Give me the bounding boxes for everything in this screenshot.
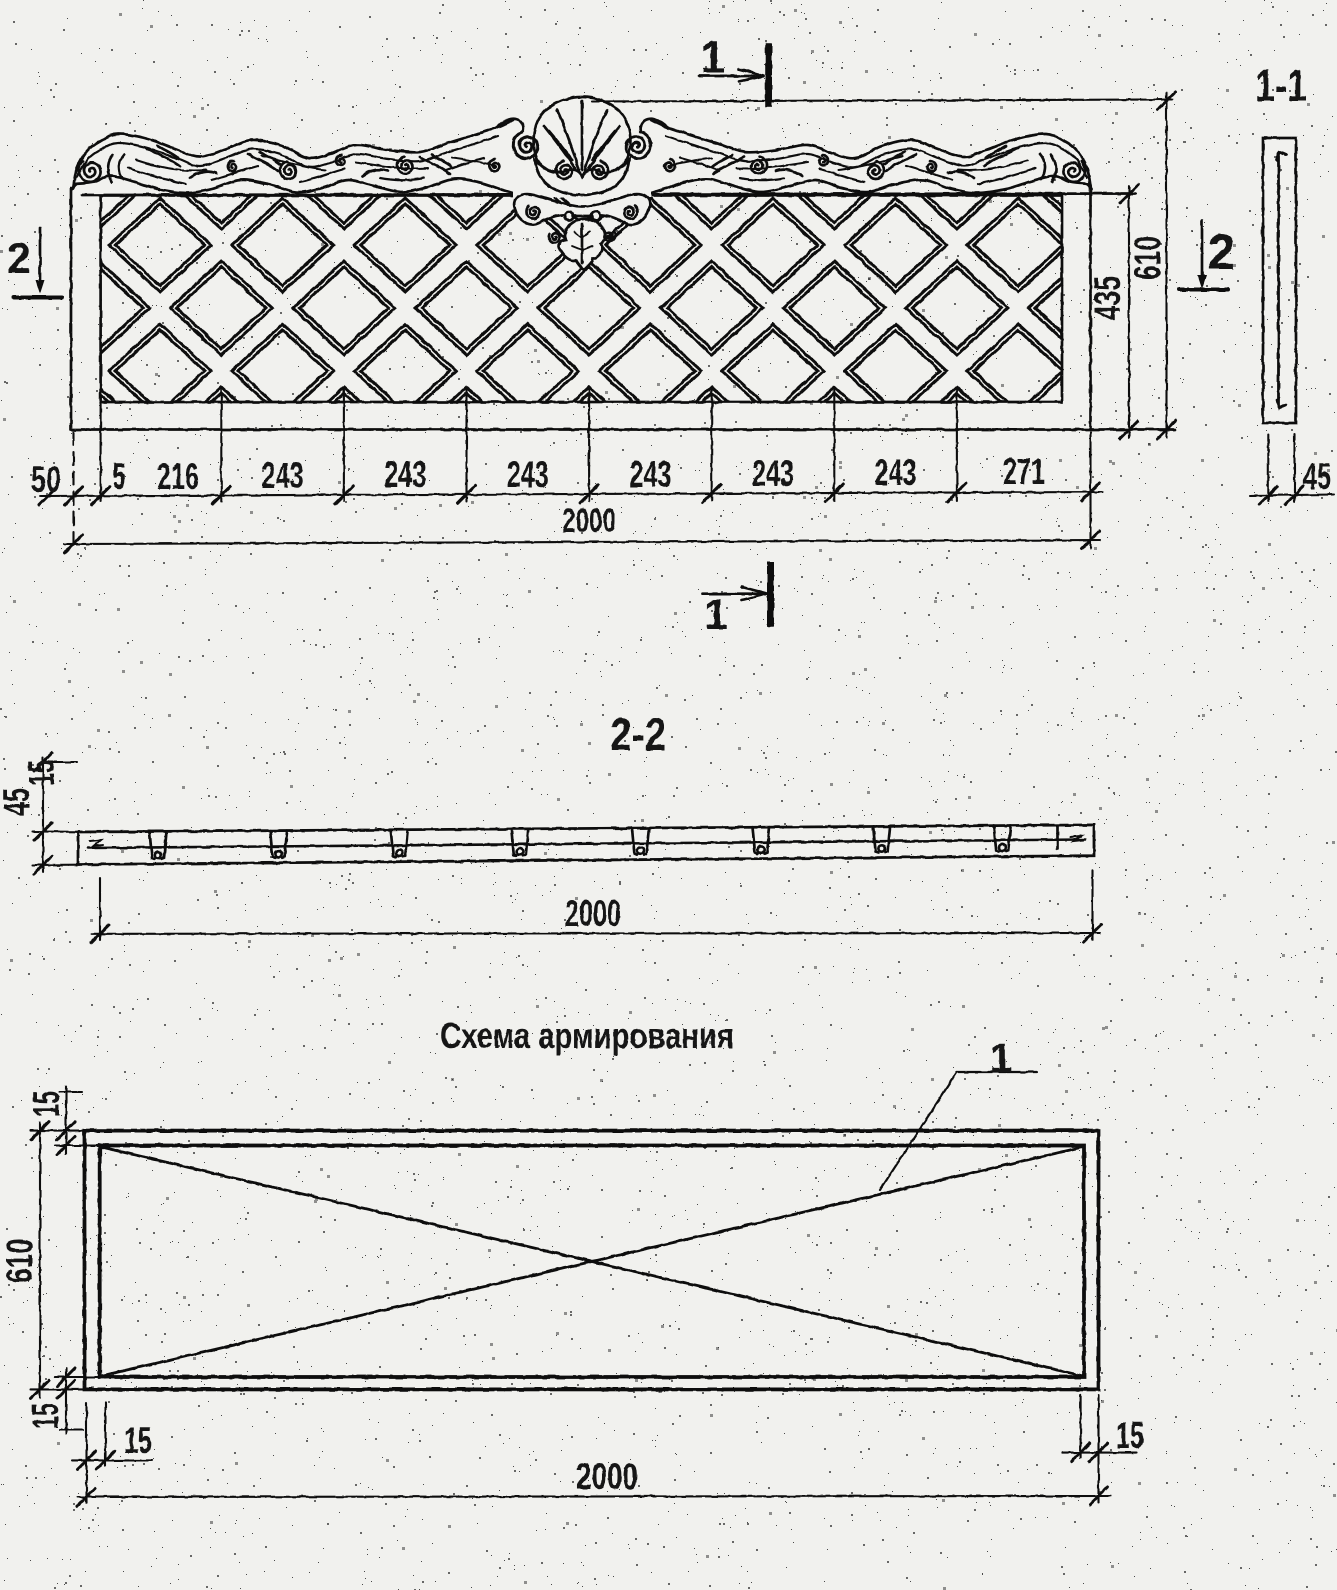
svg-text:610: 610 [1127,236,1168,280]
svg-text:2000: 2000 [565,893,621,934]
svg-text:243: 243 [384,454,426,495]
svg-text:5: 5 [113,456,126,497]
svg-text:1: 1 [704,591,728,639]
svg-text:15: 15 [26,1091,67,1117]
svg-text:2000: 2000 [562,502,616,540]
svg-text:243: 243 [875,452,917,493]
svg-text:15: 15 [124,1420,152,1461]
svg-text:1-1: 1-1 [1255,60,1307,111]
svg-text:2: 2 [7,235,31,283]
svg-text:216: 216 [157,456,199,497]
svg-text:2: 2 [1208,224,1236,280]
svg-text:435: 435 [1087,276,1128,320]
svg-text:1: 1 [990,1035,1013,1081]
svg-text:15: 15 [25,1403,66,1429]
svg-text:45: 45 [0,788,37,816]
svg-text:243: 243 [262,455,304,496]
svg-text:243: 243 [752,453,794,494]
svg-text:2-2: 2-2 [610,709,666,760]
svg-text:15: 15 [21,760,62,786]
svg-text:50: 50 [31,459,61,500]
svg-text:243: 243 [629,454,671,495]
svg-text:610: 610 [0,1239,40,1283]
svg-text:15: 15 [1116,1415,1144,1456]
svg-text:45: 45 [1303,456,1331,497]
svg-text:Схема армирования: Схема армирования [440,1015,734,1056]
svg-text:271: 271 [1003,451,1045,492]
svg-text:243: 243 [507,454,549,495]
svg-text:2000: 2000 [576,1456,638,1497]
svg-text:1: 1 [700,31,725,82]
